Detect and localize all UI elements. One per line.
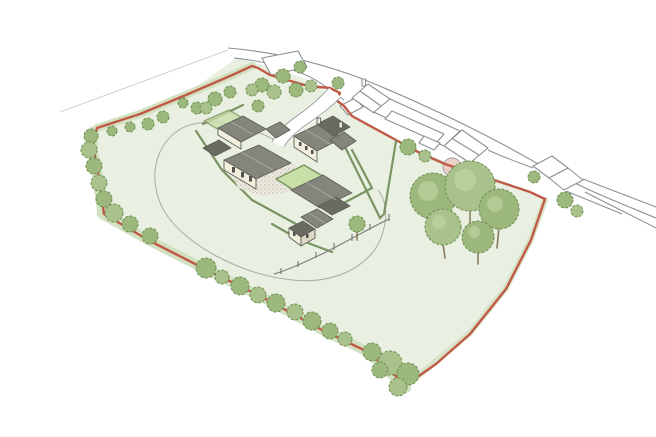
tree xyxy=(107,126,117,136)
tree xyxy=(305,80,317,92)
bush xyxy=(363,343,381,361)
site-plan-page xyxy=(0,0,656,437)
bush xyxy=(91,175,107,191)
road-near-edge-2 xyxy=(488,150,533,168)
bush xyxy=(419,150,431,162)
tree xyxy=(157,111,169,123)
tree-highlight xyxy=(487,196,503,212)
road-near-edge-3 xyxy=(585,192,656,228)
tree xyxy=(142,118,154,130)
bush xyxy=(231,277,249,295)
bush xyxy=(571,205,583,217)
barn-door xyxy=(249,176,252,182)
bush xyxy=(389,378,407,396)
tree xyxy=(246,84,258,96)
chimney xyxy=(362,79,366,86)
bush xyxy=(215,270,229,284)
tree xyxy=(332,77,344,89)
window xyxy=(306,234,309,238)
bush xyxy=(142,228,158,244)
bush xyxy=(81,142,97,158)
bush xyxy=(338,332,352,346)
bush xyxy=(528,171,540,183)
tree xyxy=(125,122,135,132)
tree-highlight xyxy=(468,226,480,238)
bush xyxy=(250,287,266,303)
bush xyxy=(84,129,98,143)
tree xyxy=(267,85,281,99)
bush xyxy=(196,258,216,278)
farmhouse-chimney xyxy=(317,118,321,124)
tree xyxy=(252,100,264,112)
tree xyxy=(289,83,303,97)
bush xyxy=(303,312,321,330)
tree-highlight xyxy=(432,215,446,229)
site-plan-sketch xyxy=(0,0,656,437)
tree xyxy=(294,61,306,73)
tree xyxy=(349,216,365,232)
window xyxy=(299,142,302,146)
bush xyxy=(372,362,388,378)
bush xyxy=(322,323,338,339)
tree-highlight xyxy=(418,181,438,201)
tree-highlight xyxy=(454,169,476,191)
barn-door xyxy=(241,172,244,178)
tree xyxy=(200,102,212,114)
farmhouse-chimney xyxy=(339,122,343,128)
large-tree xyxy=(462,221,494,253)
tree xyxy=(224,86,236,98)
tree xyxy=(178,98,188,108)
bush xyxy=(105,204,123,222)
barn-door xyxy=(232,167,235,173)
window xyxy=(311,150,314,154)
bush xyxy=(400,139,416,155)
bush xyxy=(86,158,102,174)
bush xyxy=(287,304,303,320)
bush xyxy=(557,192,573,208)
tree xyxy=(276,69,290,83)
window xyxy=(305,146,308,150)
bush xyxy=(122,216,138,232)
bush xyxy=(267,294,285,312)
window xyxy=(293,232,296,236)
